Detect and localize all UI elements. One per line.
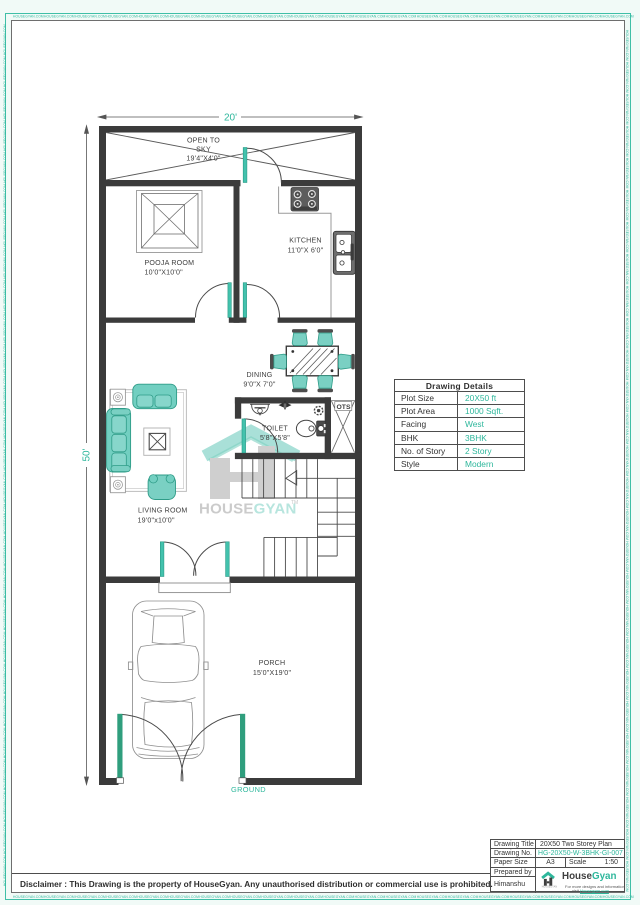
svg-text:KITCHEN: KITCHEN: [289, 237, 322, 245]
svg-text:50': 50': [82, 448, 93, 461]
svg-text:19'0"x10'0": 19'0"x10'0": [138, 517, 175, 525]
svg-text:5'8"X5'8": 5'8"X5'8": [260, 434, 290, 442]
svg-text:OPEN TO: OPEN TO: [187, 137, 220, 145]
svg-text:HOUSEGYAN™: HOUSEGYAN™: [542, 885, 557, 888]
svg-text:LIVING ROOM: LIVING ROOM: [138, 507, 188, 515]
svg-text:TM: TM: [291, 500, 298, 506]
svg-text:DINING: DINING: [246, 371, 272, 379]
svg-text:19'4"X4'0": 19'4"X4'0": [186, 155, 220, 163]
svg-text:POOJA ROOM: POOJA ROOM: [145, 259, 195, 267]
svg-text:HOUSEGYAN: HOUSEGYAN: [199, 501, 297, 518]
svg-text:TOILET: TOILET: [262, 425, 288, 433]
svg-text:9'0"X 7'0": 9'0"X 7'0": [243, 381, 276, 389]
svg-text:20': 20': [224, 113, 237, 124]
svg-text:15'0"X19'0": 15'0"X19'0": [253, 669, 292, 677]
svg-text:10'0"X10'0": 10'0"X10'0": [145, 269, 184, 277]
svg-text:OTS: OTS: [337, 404, 351, 411]
svg-text:PORCH: PORCH: [259, 659, 286, 667]
svg-text:SKY: SKY: [196, 146, 211, 154]
svg-text:11'0"X 6'0": 11'0"X 6'0": [288, 247, 324, 255]
svg-text:GROUND: GROUND: [231, 785, 266, 794]
